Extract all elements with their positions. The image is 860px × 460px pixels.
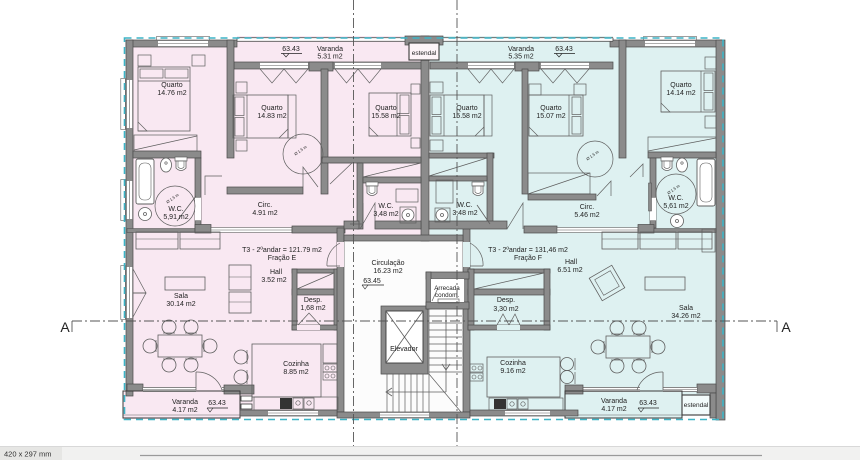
svg-text:Fração E: Fração E	[268, 255, 297, 262]
svg-text:Desp.: Desp.	[497, 297, 515, 304]
svg-text:5.35 m2: 5.35 m2	[508, 54, 533, 61]
svg-text:4.17 m2: 4.17 m2	[601, 406, 626, 413]
svg-text:34.26 m2: 34.26 m2	[671, 313, 700, 320]
svg-text:5.46 m2: 5.46 m2	[574, 212, 599, 219]
svg-text:A: A	[60, 319, 70, 335]
svg-text:Sala: Sala	[679, 305, 693, 312]
svg-text:63.45: 63.45	[363, 278, 381, 285]
svg-text:4.91 m2: 4.91 m2	[252, 210, 277, 217]
svg-text:W.C.: W.C.	[457, 202, 472, 209]
svg-text:3.52 m2: 3.52 m2	[261, 277, 286, 284]
svg-text:14.76 m2: 14.76 m2	[157, 90, 186, 97]
svg-text:Quarto: Quarto	[375, 105, 397, 112]
svg-text:T3 - 2ºandar = 131,46 m2: T3 - 2ºandar = 131,46 m2	[488, 247, 568, 254]
svg-text:W.C.: W.C.	[168, 206, 183, 213]
svg-text:8.85 m2: 8.85 m2	[283, 369, 308, 376]
svg-text:4.17 m2: 4.17 m2	[172, 407, 197, 414]
svg-text:63.43: 63.43	[282, 46, 300, 53]
svg-text:Varanda: Varanda	[601, 398, 627, 405]
svg-text:Fração F: Fração F	[514, 255, 542, 262]
svg-text:5.31 m2: 5.31 m2	[317, 54, 342, 61]
svg-text:Hall: Hall	[270, 269, 283, 276]
svg-text:9.16 m2: 9.16 m2	[500, 368, 525, 375]
svg-text:Cozinha: Cozinha	[283, 361, 309, 368]
svg-text:5,61 m2: 5,61 m2	[663, 203, 688, 210]
svg-text:Desp.: Desp.	[304, 297, 322, 304]
svg-text:Circulação: Circulação	[371, 260, 404, 267]
svg-text:14.83 m2: 14.83 m2	[257, 113, 286, 120]
svg-text:16.23 m2: 16.23 m2	[373, 268, 402, 275]
svg-text:1,68 m2: 1,68 m2	[300, 305, 325, 312]
svg-text:63.43: 63.43	[555, 46, 573, 53]
svg-text:15.58 m2: 15.58 m2	[371, 113, 400, 120]
svg-text:Arrecada: Arrecada	[434, 285, 460, 292]
svg-text:Sala: Sala	[174, 293, 188, 300]
svg-text:14.14 m2: 14.14 m2	[666, 90, 695, 97]
svg-text:W.C.: W.C.	[378, 203, 393, 210]
svg-text:estendal: estendal	[412, 50, 437, 57]
svg-text:63.43: 63.43	[639, 400, 657, 407]
svg-text:3,30 m2: 3,30 m2	[493, 306, 518, 313]
svg-text:Cozinha: Cozinha	[500, 360, 526, 367]
svg-text:condom.: condom.	[435, 292, 459, 299]
svg-text:3,48 m2: 3,48 m2	[373, 211, 398, 218]
svg-text:30.14 m2: 30.14 m2	[166, 301, 195, 308]
svg-text:15.07 m2: 15.07 m2	[536, 113, 565, 120]
svg-text:Quarto: Quarto	[670, 82, 692, 89]
svg-text:420 x 297 mm: 420 x 297 mm	[4, 450, 52, 459]
svg-text:T3 - 2ºandar = 121.79 m2: T3 - 2ºandar = 121.79 m2	[242, 247, 322, 254]
svg-text:3,48 m2: 3,48 m2	[452, 210, 477, 217]
svg-text:Hall: Hall	[565, 259, 578, 266]
svg-text:estendal: estendal	[684, 402, 709, 409]
svg-text:Varanda: Varanda	[172, 399, 198, 406]
svg-text:Circ.: Circ.	[258, 202, 272, 209]
svg-text:A: A	[781, 319, 791, 335]
svg-text:63.43: 63.43	[208, 400, 226, 407]
svg-text:Varanda: Varanda	[317, 46, 343, 53]
svg-text:Varanda: Varanda	[508, 46, 534, 53]
svg-text:5,91 m2: 5,91 m2	[163, 214, 188, 221]
svg-text:Quarto: Quarto	[540, 105, 562, 112]
svg-text:Circ.: Circ.	[580, 204, 594, 211]
svg-text:W.C.: W.C.	[668, 195, 683, 202]
svg-text:Quarto: Quarto	[161, 82, 183, 89]
svg-text:Quarto: Quarto	[456, 105, 478, 112]
svg-text:6.51 m2: 6.51 m2	[557, 267, 582, 274]
svg-text:Quarto: Quarto	[261, 105, 283, 112]
svg-text:Elevador: Elevador	[390, 346, 418, 353]
